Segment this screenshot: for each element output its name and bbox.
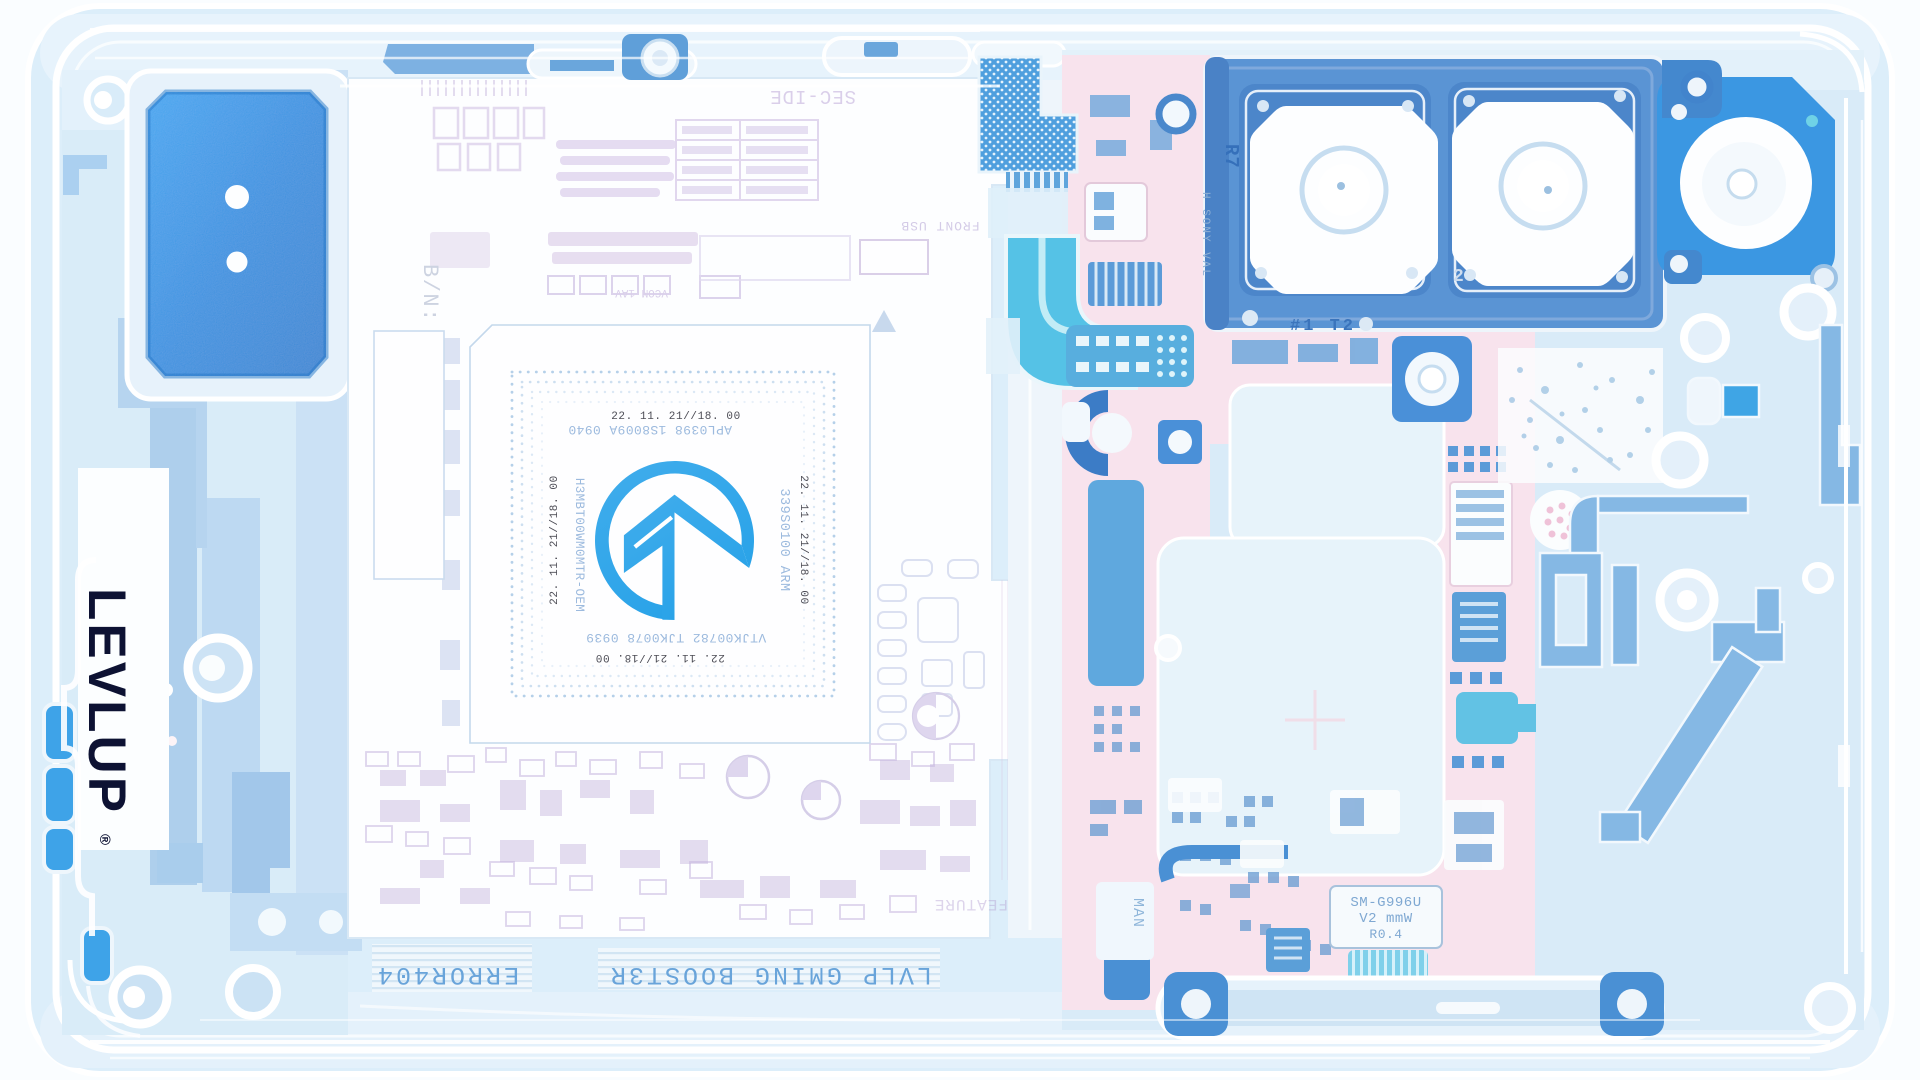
svg-text:LVLP GMING BOOST3R: LVLP GMING BOOST3R — [608, 960, 932, 989]
svg-text:#1 T2: #1 T2 — [1290, 317, 1356, 336]
svg-text:22. 11. 21//18. 00: 22. 11. 21//18. 00 — [595, 651, 725, 663]
svg-text:FEATURE: FEATURE — [934, 895, 1008, 913]
svg-text:SEC-IDE: SEC-IDE — [769, 85, 856, 107]
svg-text:R7: R7 — [1220, 144, 1242, 169]
svg-text:2: 2 — [1453, 267, 1464, 287]
svg-text:MAN: MAN — [1129, 898, 1146, 928]
svg-text:H3MBT00WM0MTR-OEM: H3MBT00WM0MTR-OEM — [572, 478, 586, 612]
svg-text:VCOM 1AV: VCOM 1AV — [615, 286, 668, 298]
svg-text:H SONY VAL: H SONY VAL — [1199, 192, 1211, 278]
svg-text:ERROR404: ERROR404 — [375, 960, 519, 989]
svg-text:B/N:: B/N: — [417, 264, 442, 323]
svg-text:®: ® — [96, 834, 113, 845]
svg-text:22. 11. 21//18. 00: 22. 11. 21//18. 00 — [611, 411, 741, 423]
svg-text:APL0398 1S8009A 0940: APL0398 1S8009A 0940 — [568, 422, 732, 437]
svg-text:V2 mmW: V2 mmW — [1359, 911, 1413, 927]
svg-text:VTJK00782 TJK0078 0939: VTJK00782 TJK0078 0939 — [586, 630, 766, 645]
svg-text:339S0100 ARM: 339S0100 ARM — [776, 488, 791, 591]
svg-text:22. 11. 21//18. 00: 22. 11. 21//18. 00 — [549, 475, 561, 605]
svg-text:FRONT USB: FRONT USB — [900, 218, 979, 233]
svg-text:22. 11. 21//18. 00: 22. 11. 21//18. 00 — [797, 475, 809, 605]
svg-text:LEVLUP: LEVLUP — [77, 588, 136, 815]
svg-text:SM-G996U: SM-G996U — [1350, 895, 1421, 911]
svg-text:R0.4: R0.4 — [1369, 927, 1402, 942]
